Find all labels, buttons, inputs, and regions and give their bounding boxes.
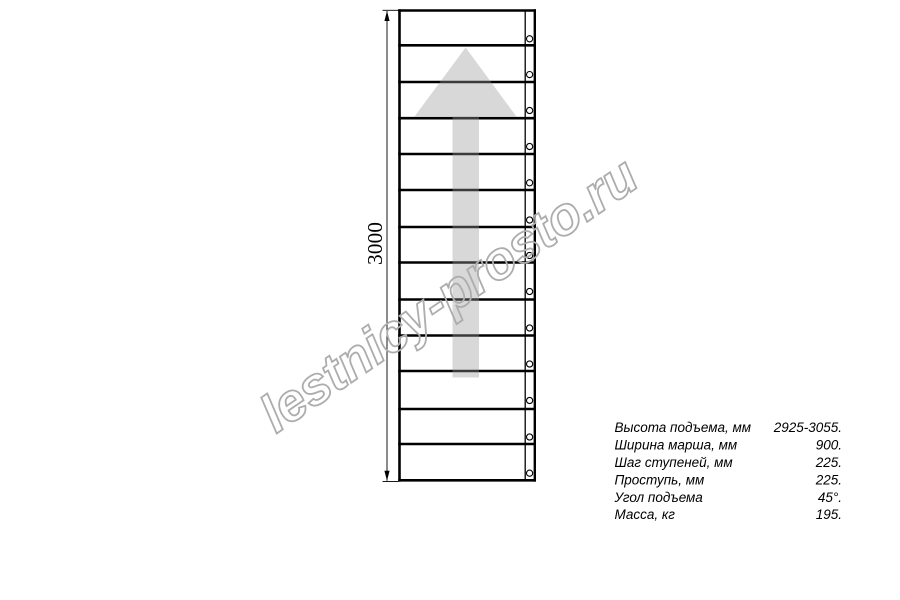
svg-text:Ширина марша, мм: Ширина марша, мм [615,437,738,452]
svg-text:2925-3055.: 2925-3055. [773,420,842,435]
svg-text:Угол подъема: Угол подъема [614,490,704,505]
svg-text:900.: 900. [816,437,842,452]
svg-text:45°.: 45°. [818,490,842,505]
svg-text:Проступь, мм: Проступь, мм [615,472,705,487]
svg-text:3000: 3000 [363,222,387,265]
svg-text:225.: 225. [815,455,842,470]
svg-text:Шаг ступеней, мм: Шаг ступеней, мм [615,455,733,470]
svg-text:Масса, кг: Масса, кг [615,507,676,522]
svg-text:195.: 195. [816,507,842,522]
svg-text:Высота подъема, мм: Высота подъема, мм [615,420,751,435]
svg-text:225.: 225. [815,472,842,487]
